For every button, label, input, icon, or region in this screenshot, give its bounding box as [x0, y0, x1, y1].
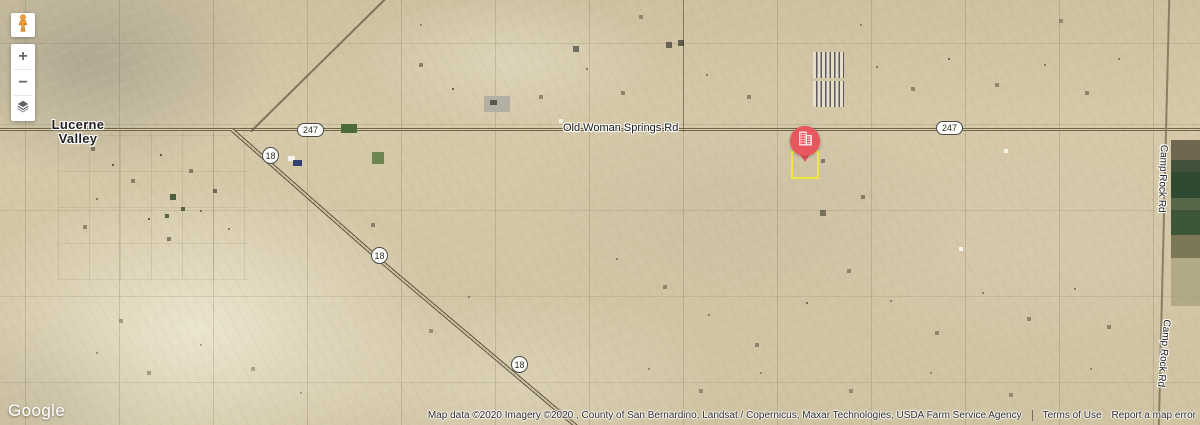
agricultural-fields [1171, 140, 1200, 258]
town-parcel-grid [58, 130, 248, 280]
green-field-patch [372, 152, 384, 164]
building-icon [797, 130, 814, 152]
road-minor-vertical [683, 0, 684, 132]
pin-circle [790, 126, 820, 156]
zoom-in-button[interactable]: + [11, 44, 35, 69]
report-map-error-link[interactable]: Report a map error [1112, 410, 1196, 421]
route-shield-247-east: 247 [936, 121, 963, 135]
map-viewport[interactable]: Lucerne Valley Old Woman Springs Rd Camp… [0, 0, 1200, 425]
solar-array-rows [813, 81, 844, 107]
route-shield-18-lower: 18 [511, 356, 528, 373]
road-label-old-woman-springs: Old Woman Springs Rd [563, 122, 678, 134]
attribution-divider [1032, 410, 1033, 421]
pegman-icon [15, 14, 31, 37]
zoom-out-button[interactable]: − [11, 70, 35, 95]
route-shield-18-middle: 18 [371, 247, 388, 264]
google-logo[interactable]: Google [8, 401, 65, 421]
green-field-patch [341, 124, 357, 133]
industrial-building [484, 96, 510, 112]
place-label-line1: Lucerne [42, 118, 114, 132]
attribution-text: Map data ©2020 Imagery ©2020 , County of… [428, 410, 1022, 421]
road-label-camp-rock-north: Camp Rock Rd [1156, 145, 1169, 213]
place-label-lucerne-valley: Lucerne Valley [42, 118, 114, 146]
property-marker-pin[interactable] [790, 126, 820, 164]
place-label-line2: Valley [42, 132, 114, 146]
route-shield-18-upper: 18 [262, 147, 279, 164]
building-blue-roof [293, 160, 302, 166]
scattered-structures [0, 0, 2, 2]
layers-button[interactable] [11, 96, 35, 121]
pegman-street-view-button[interactable] [11, 13, 35, 37]
zoom-control: + − [11, 44, 35, 121]
solar-array-rows [813, 52, 844, 78]
attribution-bar: Map data ©2020 Imagery ©2020 , County of… [428, 410, 1196, 421]
layers-icon [16, 99, 30, 118]
route-shield-247-west: 247 [297, 123, 324, 137]
terms-of-use-link[interactable]: Terms of Use [1043, 410, 1102, 421]
agricultural-fields [1171, 258, 1200, 306]
